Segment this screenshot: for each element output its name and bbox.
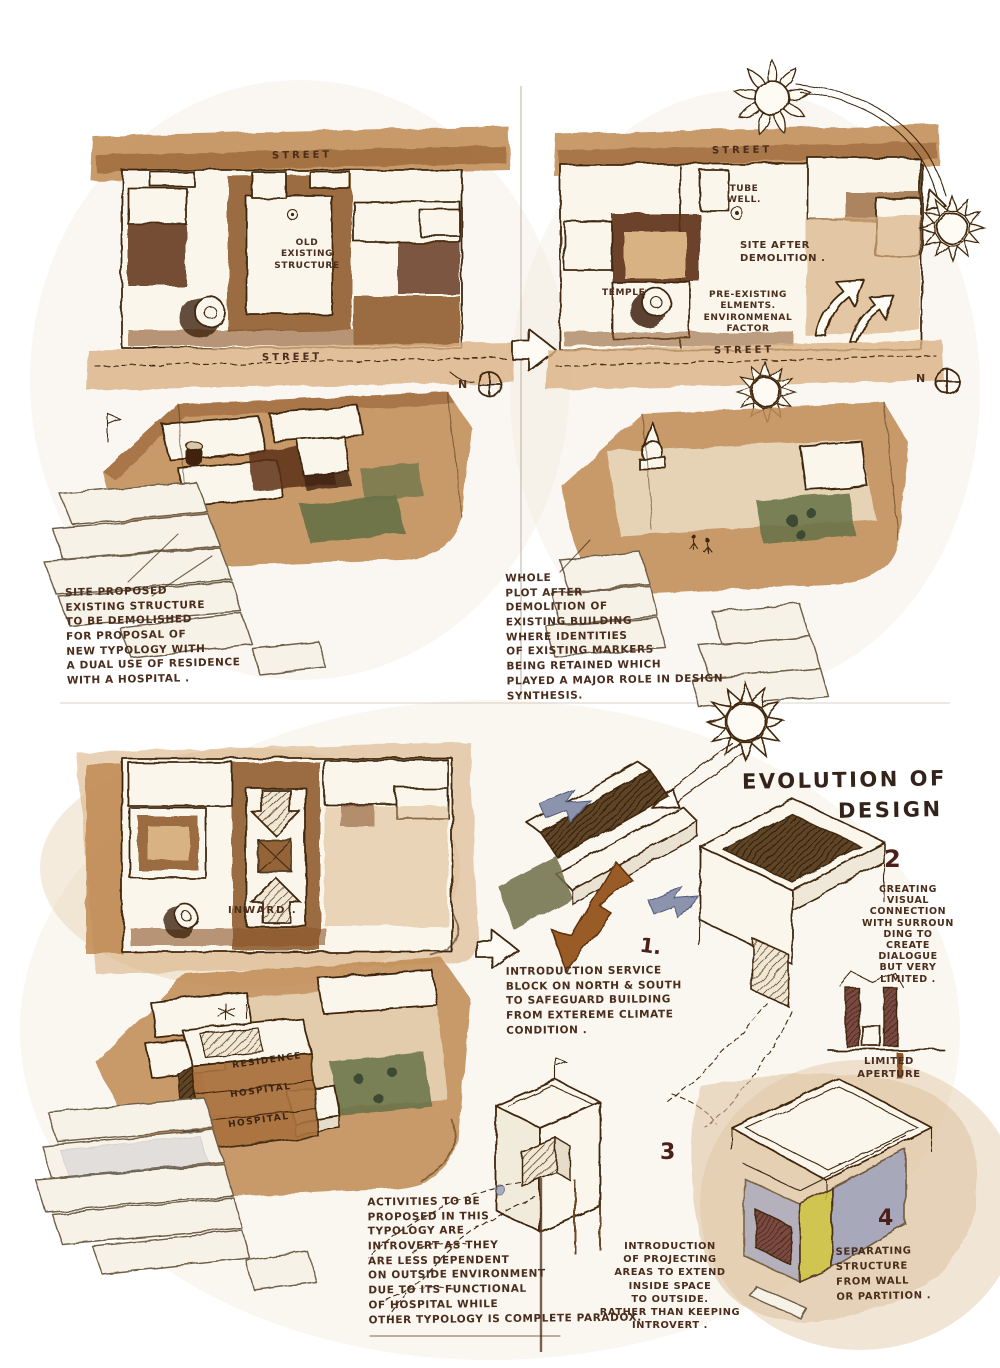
tube-well-label: TUBE WELL.: [716, 184, 772, 207]
inward-plan: [76, 742, 478, 974]
pre-existing-label: PRE-EXISTING ELMENTS. ENVIRONMENAL FACTO…: [700, 290, 796, 335]
temple-label: TEMPLE: [602, 288, 645, 299]
sketch-page: STREET OLD EXISTING STRUCTURE STREET N S…: [0, 0, 1000, 1368]
evolution-title-line2: DESIGN: [838, 797, 943, 823]
street-label-top-right: STREET: [712, 143, 772, 158]
demolition-caption: WHOLE PLOT AFTER DEMOLITION OF EXISTING …: [505, 568, 723, 703]
inward-label: INWARD .: [228, 904, 298, 918]
step1-number: 1.: [638, 933, 663, 960]
site-after-label: SITE AFTER DEMOLITION .: [740, 240, 826, 265]
north-compass-icon: [935, 369, 959, 393]
limited-aperture-label: LIMITED APERTURE: [850, 1056, 928, 1081]
street-label-top-left: STREET: [272, 148, 332, 163]
street-label-bottom-right: STREET: [714, 343, 774, 358]
north-label: N: [916, 372, 926, 387]
step3-caption: INTRODUCTION OF PROJECTING AREAS TO EXTE…: [588, 1240, 752, 1333]
evolution-title-line1: EVOLUTION OF: [742, 766, 947, 794]
north-label: N: [458, 378, 468, 393]
site-caption: SITE PROPOSED EXISTING STRUCTURE TO BE D…: [65, 582, 241, 688]
step1-caption: INTRODUCTION SERVICE BLOCK ON NORTH & SO…: [506, 963, 683, 1038]
step2-caption: CREATING VISUAL CONNECTION WITH SURROUN …: [862, 884, 954, 985]
step3-number: 3: [660, 1140, 675, 1165]
step4-number: 4: [878, 1206, 893, 1231]
step4-caption: SEPARATING STRUCTURE FROM WALL OR PARTIT…: [835, 1243, 931, 1305]
step2-number: 2: [884, 845, 901, 873]
plan-before-label: OLD EXISTING STRUCTURE: [270, 238, 344, 272]
street-label-bottom-left: STREET: [262, 350, 322, 365]
